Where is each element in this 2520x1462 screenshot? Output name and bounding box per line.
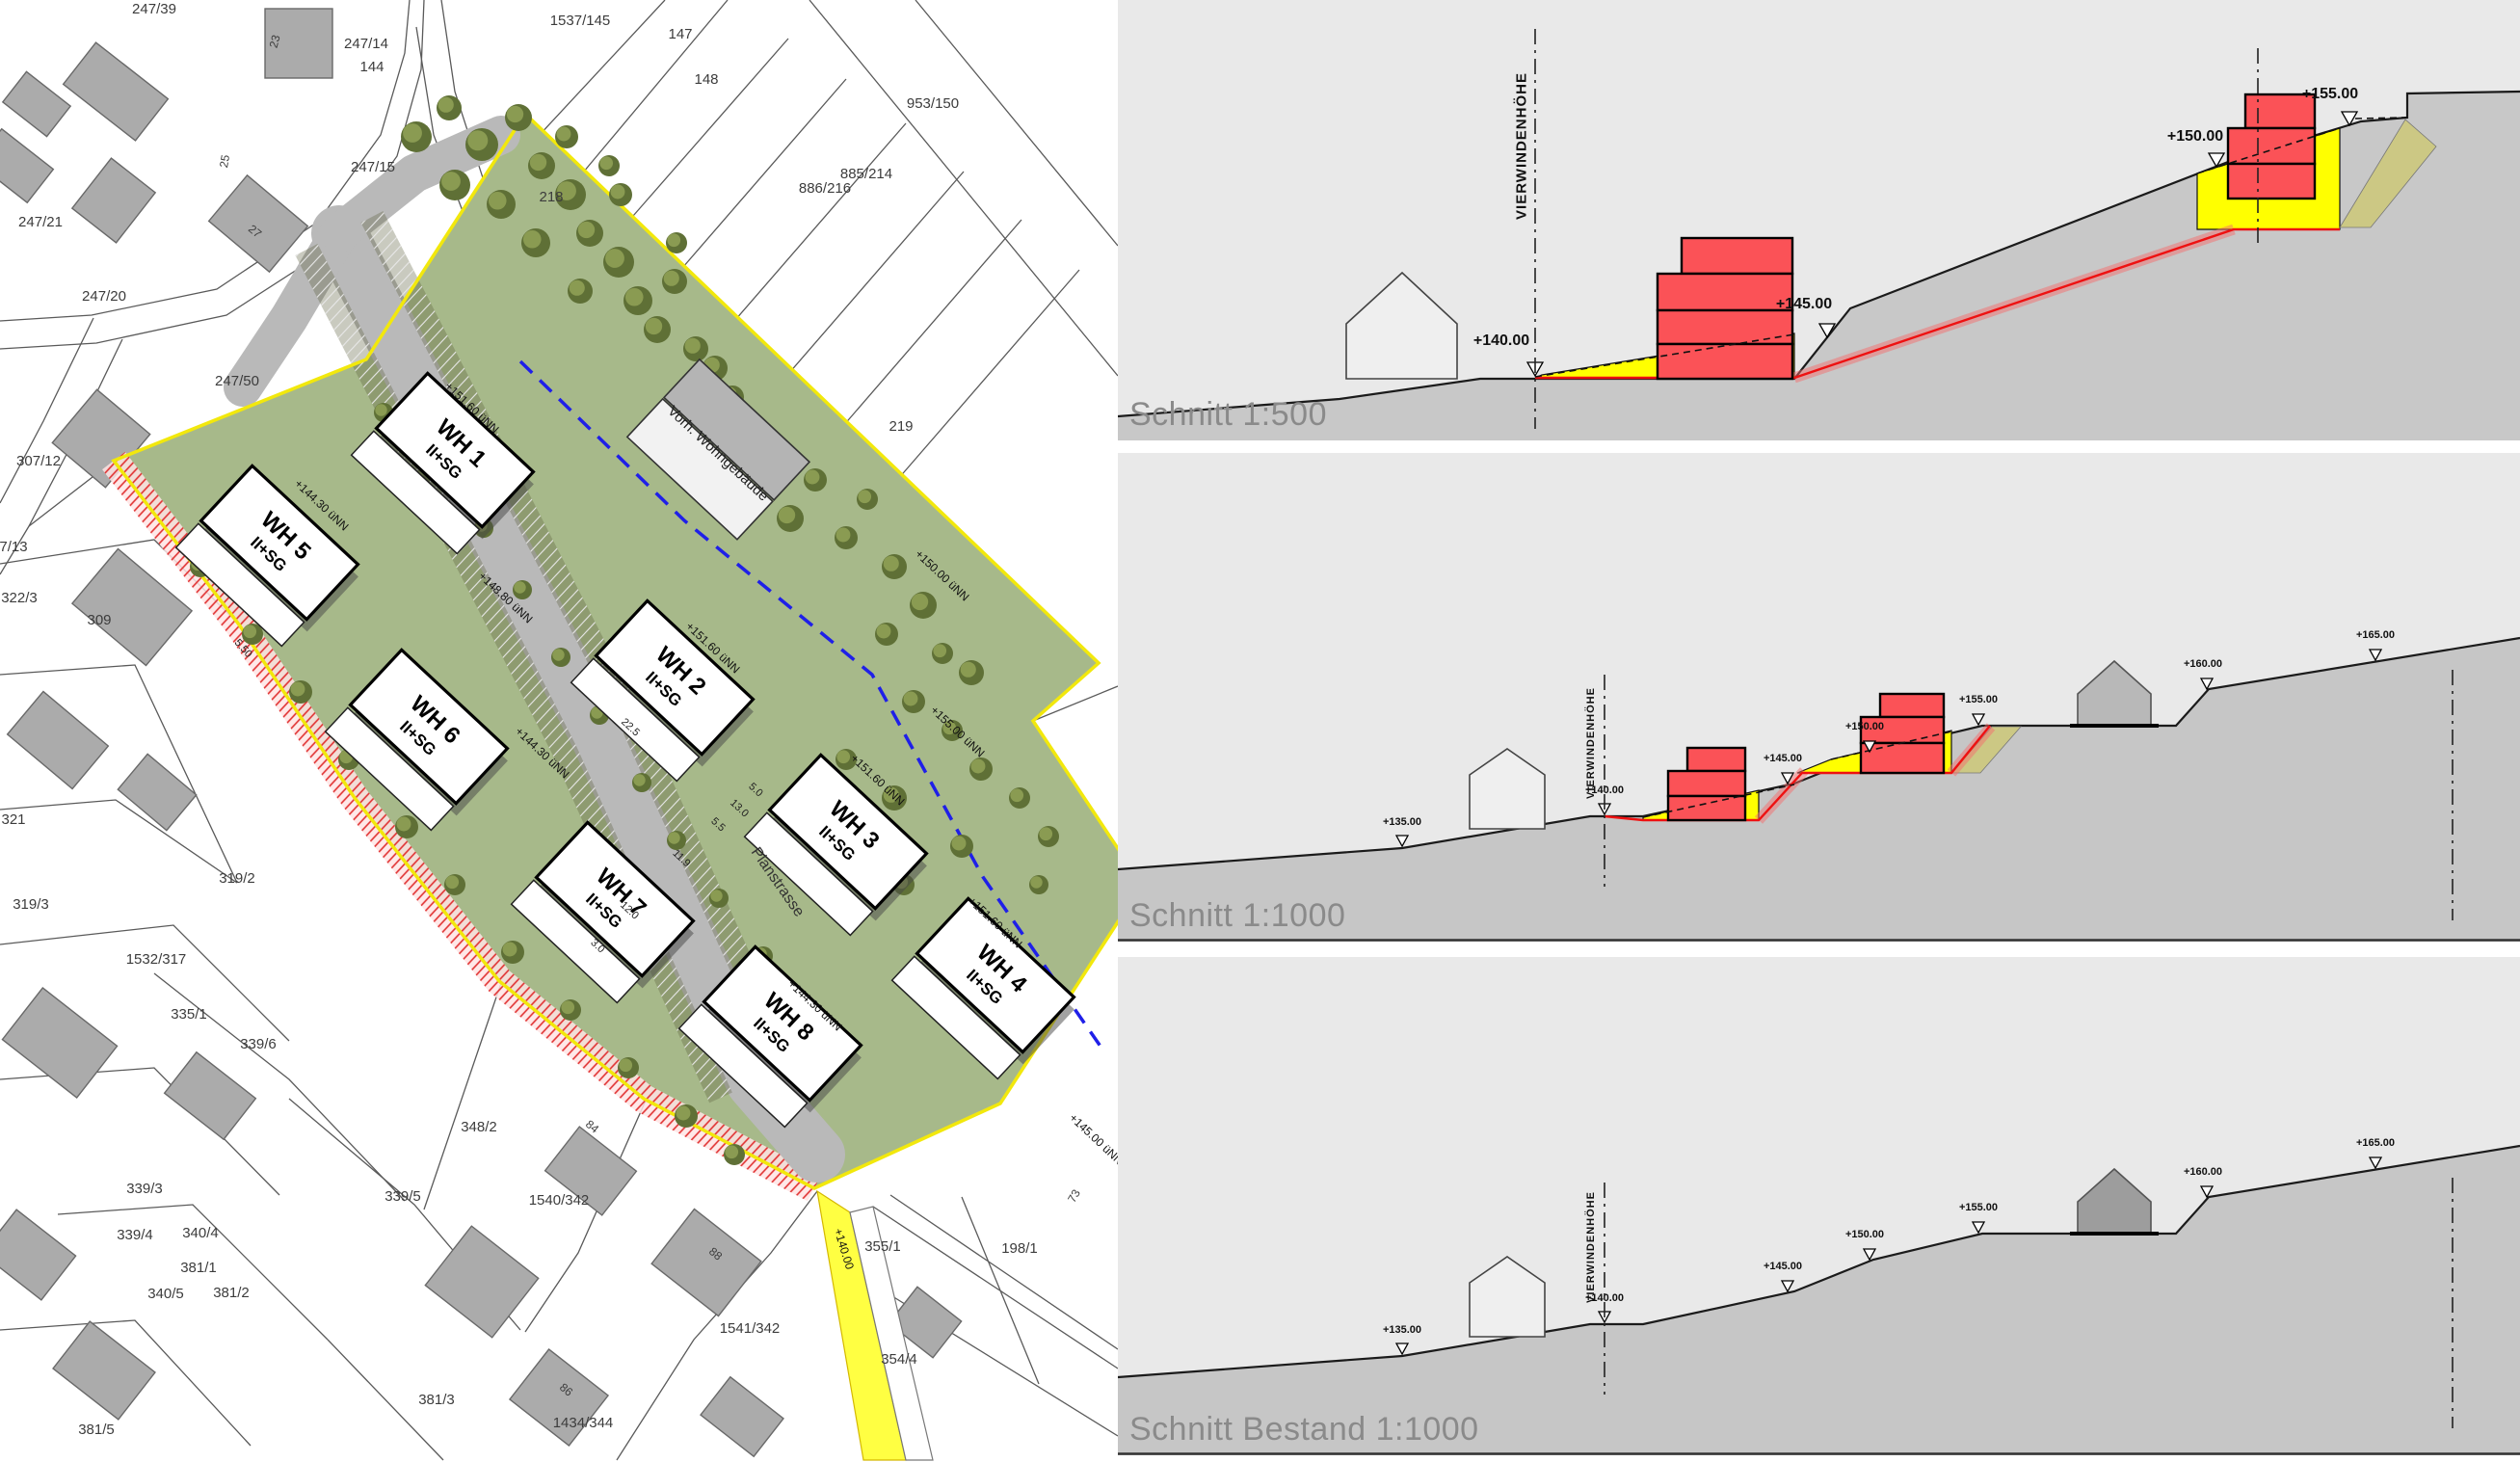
svg-text:+160.00: +160.00 — [2184, 658, 2222, 670]
svg-text:381/1: 381/1 — [180, 1260, 217, 1276]
svg-text:+145.00: +145.00 — [1776, 296, 1832, 312]
vierwindenhoehe-axis-label-0: VIERWINDENHÖHE — [1514, 54, 1530, 237]
svg-text:340/5: 340/5 — [147, 1286, 184, 1302]
svg-text:147: 147 — [668, 26, 692, 42]
svg-text:219: 219 — [889, 418, 913, 435]
svg-text:381/3: 381/3 — [418, 1392, 455, 1408]
svg-text:953/150: 953/150 — [907, 95, 959, 112]
svg-text:73: 73 — [1065, 1186, 1083, 1205]
vierwindenhoehe-axis-label-2: VIERWINDENHÖHE — [1585, 1156, 1597, 1339]
svg-text:+140.00: +140.00 — [1473, 332, 1529, 349]
svg-text:307/12: 307/12 — [16, 453, 61, 469]
section-schnitt-1000: +135.00+140.00+145.00+150.00+155.00+160.… — [1118, 453, 2520, 942]
svg-text:1434/344: 1434/344 — [553, 1415, 614, 1431]
svg-text:+160.00: +160.00 — [2184, 1166, 2222, 1178]
svg-text:339/6: 339/6 — [240, 1036, 277, 1052]
svg-text:339/4: 339/4 — [117, 1227, 153, 1243]
svg-text:247/20: 247/20 — [82, 288, 126, 305]
svg-text:355/1: 355/1 — [864, 1238, 901, 1255]
svg-text:340/4: 340/4 — [182, 1225, 219, 1241]
svg-text:+150.00: +150.00 — [2167, 128, 2223, 145]
svg-text:+145.00 üNN: +145.00 üNN — [1067, 1111, 1118, 1168]
svg-text:+155.00: +155.00 — [2302, 86, 2358, 102]
section-title-schnitt-bestand: Schnitt Bestand 1:1000 — [1129, 1411, 1479, 1449]
svg-text:+135.00: +135.00 — [1383, 816, 1421, 828]
svg-text:+145.00: +145.00 — [1764, 753, 1802, 764]
svg-text:25: 25 — [217, 153, 232, 169]
svg-text:+150.00: +150.00 — [1845, 721, 1884, 732]
svg-text:247/15: 247/15 — [351, 159, 395, 175]
svg-text:247/21: 247/21 — [18, 214, 63, 230]
svg-text:319/3: 319/3 — [13, 896, 49, 913]
svg-text:1532/317: 1532/317 — [126, 951, 187, 968]
svg-text:198/1: 198/1 — [1001, 1240, 1038, 1257]
section-title-schnitt-1000: Schnitt 1:1000 — [1129, 897, 1345, 935]
section-title-schnitt-500: Schnitt 1:500 — [1129, 396, 1327, 434]
svg-text:1541/342: 1541/342 — [720, 1320, 781, 1337]
svg-text:319/2: 319/2 — [219, 870, 255, 887]
svg-text:309: 309 — [87, 612, 111, 628]
svg-text:321: 321 — [1, 811, 25, 828]
section-schnitt-bestand-1000: +135.00+140.00+145.00+150.00+155.00+160.… — [1118, 957, 2520, 1455]
svg-text:886/216: 886/216 — [799, 180, 851, 197]
svg-text:+165.00: +165.00 — [2356, 629, 2395, 641]
svg-text:354/4: 354/4 — [881, 1351, 917, 1368]
svg-text:1540/342: 1540/342 — [529, 1192, 590, 1209]
svg-text:148: 148 — [694, 71, 718, 88]
svg-text:381/2: 381/2 — [213, 1285, 250, 1301]
drawing-canvas: Vorh. WohngebäudeWH 1II+SGWH 2II+SGWH 3I… — [0, 0, 2520, 1462]
svg-text:+165.00: +165.00 — [2356, 1137, 2395, 1149]
svg-text:348/2: 348/2 — [461, 1119, 497, 1135]
svg-text:322/3: 322/3 — [1, 590, 38, 606]
svg-text:+150.00: +150.00 — [1845, 1229, 1884, 1240]
svg-text:218: 218 — [539, 189, 563, 205]
svg-text:+155.00: +155.00 — [1959, 694, 1998, 705]
site-plan-map: Vorh. WohngebäudeWH 1II+SGWH 2II+SGWH 3I… — [0, 0, 1118, 1462]
svg-text:339/5: 339/5 — [385, 1188, 421, 1205]
svg-text:1537/145: 1537/145 — [550, 13, 611, 29]
svg-text:7/13: 7/13 — [0, 539, 28, 555]
svg-text:247/50: 247/50 — [215, 373, 259, 389]
svg-text:247/14: 247/14 — [344, 36, 388, 52]
svg-text:381/5: 381/5 — [78, 1422, 115, 1438]
section-schnitt-500: +140.00+145.00+150.00+155.00 — [1118, 0, 2520, 440]
svg-text:247/39: 247/39 — [132, 1, 176, 17]
svg-text:144: 144 — [359, 59, 384, 75]
svg-text:+155.00: +155.00 — [1959, 1202, 1998, 1213]
svg-text:335/1: 335/1 — [171, 1006, 207, 1023]
svg-text:339/3: 339/3 — [126, 1181, 163, 1197]
svg-text:+135.00: +135.00 — [1383, 1324, 1421, 1336]
svg-text:+145.00: +145.00 — [1764, 1261, 1802, 1272]
vierwindenhoehe-axis-label-1: VIERWINDENHÖHE — [1585, 651, 1597, 835]
